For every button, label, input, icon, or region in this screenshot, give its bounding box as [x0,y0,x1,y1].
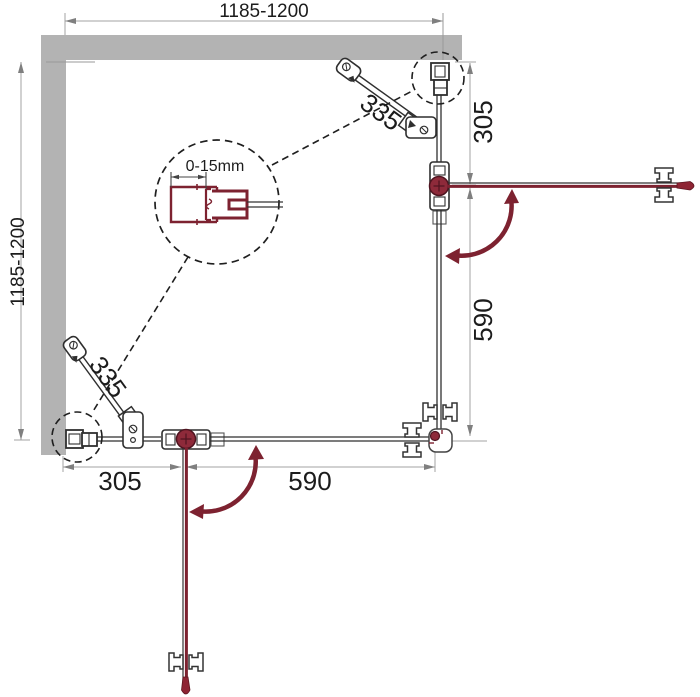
wall-profile-bottom [66,430,97,448]
door-right-open [445,168,694,264]
corner-connector [429,429,452,452]
dimension-bottom-door: 590 [186,449,435,496]
wall-profile-right [431,63,449,95]
door-bottom-edge-profile [182,677,191,694]
wall-left [41,35,66,455]
support-bar-right-label: 335 [355,87,408,137]
handle-right-door-closed [423,403,457,421]
support-bar-right-wall-bracket [335,56,364,83]
fixed-panel-right-glass [437,95,441,162]
dim-left-overall-label: 1185-1200 [8,217,29,306]
pivot-hinge-right [430,162,450,210]
dim-bottom-door-label: 590 [288,466,331,496]
swing-arc-bottom [189,445,264,519]
door-right-closed-glass [433,210,446,429]
swing-arc-right [445,189,519,264]
dimension-right-fixed: 305 [452,62,498,185]
shower-enclosure-plan: 1185-1200 1185-1200 305 590 [0,0,700,697]
dim-right-door-label: 590 [468,298,498,341]
detail-adjustment-label: 0-15mm [186,158,245,175]
pivot-hinge-bottom [162,430,210,450]
door-bottom-open [169,445,264,694]
dim-right-fixed-label: 305 [468,100,498,143]
dim-top-overall-label: 1185-1200 [219,1,308,22]
support-bar-bottom-glass-clamp [118,407,143,448]
dim-bottom-fixed-label: 305 [98,466,141,496]
wall-top [41,35,462,60]
plan-drawing: 1185-1200 1185-1200 305 590 [0,0,700,697]
corner-magnet-point [431,432,440,441]
door-right-edge-profile [677,182,694,191]
handle-bottom-door-closed [403,423,421,457]
dimension-bottom-fixed: 305 [63,449,183,496]
door-bottom-closed-glass [210,433,429,446]
